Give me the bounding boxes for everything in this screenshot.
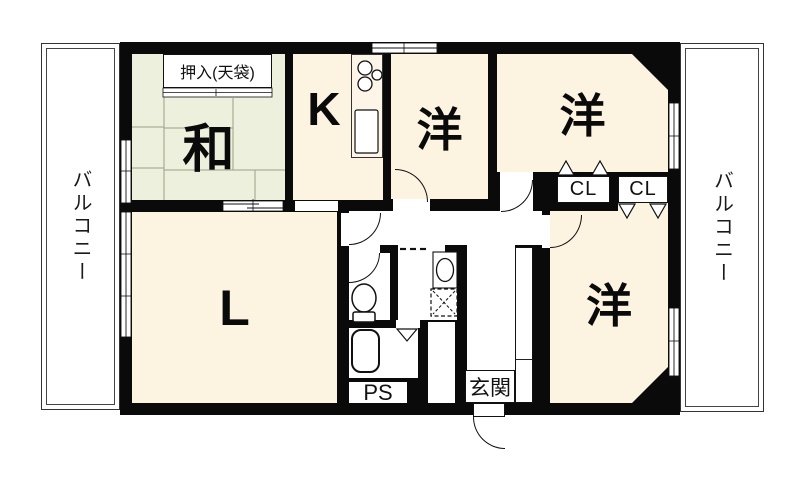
shaft-space	[428, 322, 455, 403]
door-opening-living	[341, 213, 349, 246]
shoe-cabinet-shelf-line	[516, 359, 532, 360]
balcony-right	[680, 43, 764, 412]
room-bathroom	[349, 328, 418, 378]
kitchen-counter	[351, 54, 383, 158]
closet-cl-2	[618, 176, 668, 203]
oshiire-closet	[163, 54, 272, 88]
room-washroom	[398, 253, 457, 320]
shoe-cabinet	[515, 247, 533, 403]
entrance-door-leaf	[473, 403, 505, 417]
closet-cl-1	[557, 176, 610, 203]
wall-cl-bottom	[533, 203, 618, 211]
pipe-space-box	[349, 382, 407, 403]
door-opening-washroom	[398, 245, 445, 253]
balcony-left	[41, 43, 120, 410]
floor-plan: バルコニー バルコニー 和 K 洋 洋 洋 L 押入(天袋) CL CL PS …	[0, 0, 801, 490]
door-arc-entrance	[473, 417, 505, 449]
balcony-right-inner-rail	[685, 48, 759, 407]
door-opening-toilet	[349, 245, 380, 253]
balcony-left-inner-rail	[46, 48, 115, 405]
door-opening-western-bottom-right	[542, 215, 550, 248]
entrance-area	[465, 370, 515, 403]
room-western-top-right	[497, 54, 668, 172]
door-opening-bathroom	[396, 320, 420, 328]
room-living	[132, 212, 337, 403]
